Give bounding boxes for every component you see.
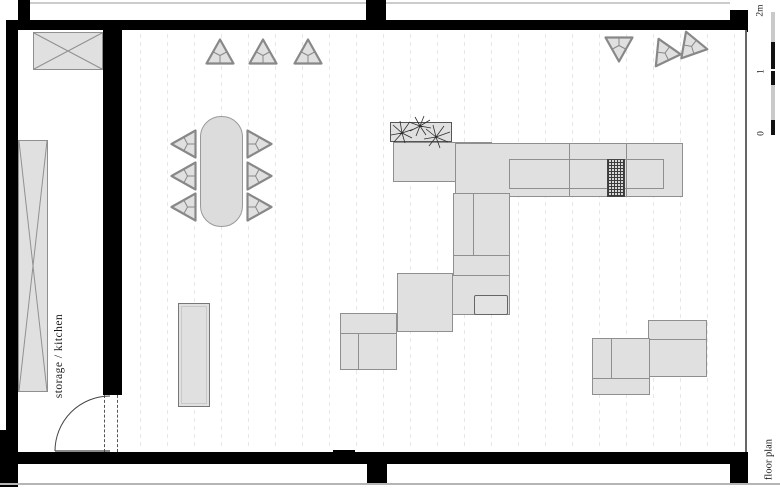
storage-counter-tall-crossed [18, 140, 48, 392]
counter-inner-panel [509, 159, 664, 189]
cross-lines [19, 141, 47, 391]
stool-icon [244, 160, 274, 192]
scale-bar-segment [771, 71, 775, 85]
bench [178, 303, 210, 407]
glass-wall-right-line [745, 30, 747, 452]
hatched-appliance [607, 159, 625, 197]
wall-bottom [6, 452, 748, 464]
kitchen-column-band [453, 255, 510, 276]
wall-bottom-footing [367, 464, 387, 483]
counter-divider [593, 378, 649, 379]
scale-label-1: 1 [757, 66, 768, 78]
scale-bar-segment [771, 12, 775, 42]
stool-icon [603, 34, 635, 64]
wall-bottom-right-block [730, 452, 748, 483]
bench-inner-line [181, 306, 207, 404]
kitchen-counter-lowright-b [648, 320, 707, 377]
stool-icon [244, 128, 274, 160]
stool-icon [169, 128, 199, 160]
storage-unit-top-crossed [33, 32, 103, 70]
wall-top-pier [366, 0, 386, 20]
counter-divider [611, 339, 612, 378]
door-opening-dash-2 [117, 395, 118, 452]
stool-icon [204, 37, 236, 67]
wall-divider [103, 30, 122, 395]
wall-top-right-block [730, 10, 748, 32]
appliance-box [474, 295, 508, 315]
column-divider [473, 194, 474, 255]
stool-icon [169, 191, 199, 223]
counter-divider [341, 333, 396, 334]
kitchen-column-upper [453, 193, 510, 256]
wall-top-left-stub [18, 0, 30, 22]
stool-icon [292, 37, 324, 67]
wall-top [18, 20, 748, 30]
stool-icon [169, 160, 199, 192]
stool-icon [677, 29, 712, 66]
wall-bottom-left-block [0, 430, 18, 487]
kitchen-counter-long [455, 143, 683, 197]
stool-icon [244, 191, 274, 223]
kitchen-counter-lowleft [340, 313, 397, 370]
drawing-caption: floor plan [764, 430, 777, 488]
swing-door [50, 390, 112, 453]
plant-icon [388, 112, 458, 148]
counter-divider [649, 339, 706, 340]
main-room-floorboards [122, 30, 745, 450]
wall-left [6, 20, 18, 452]
scale-bar-segment [771, 42, 775, 69]
cross-lines [34, 33, 102, 69]
scale-label-2m: 2m [756, 1, 767, 21]
floor-plan-drawing: storage / kitchen [0, 0, 780, 488]
counter-divider [358, 333, 359, 369]
stool-icon [247, 37, 279, 67]
scale-bar-segment [771, 120, 775, 135]
kitchen-counter-mid [397, 273, 453, 332]
kitchen-counter-lowright-a [592, 338, 650, 395]
ground-line [0, 483, 780, 485]
scale-bar-segment [771, 85, 775, 120]
scale-label-0: 0 [757, 128, 768, 140]
dining-table [200, 116, 243, 227]
